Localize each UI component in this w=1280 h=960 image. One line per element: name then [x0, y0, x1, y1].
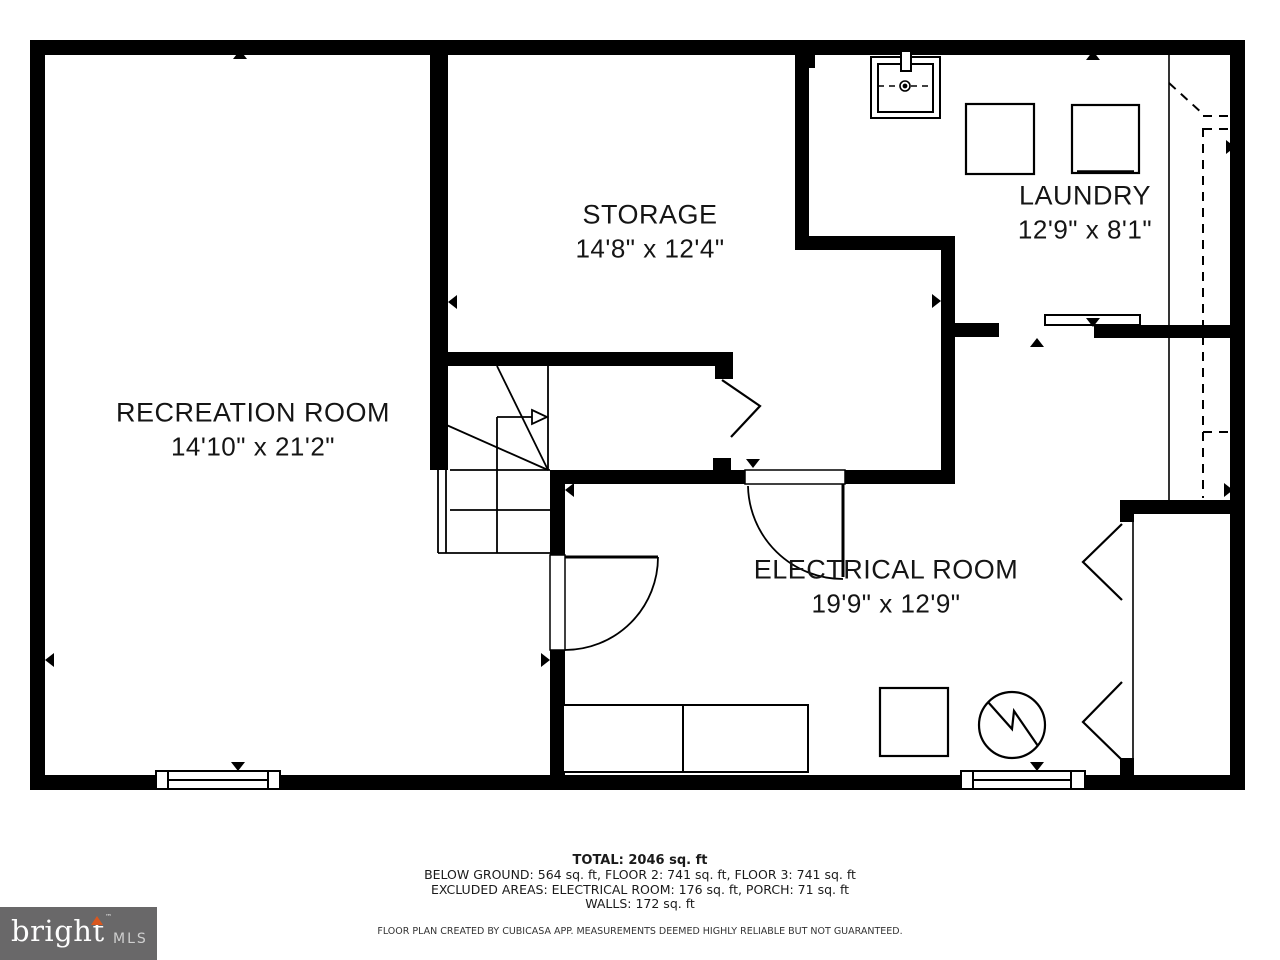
marker-right-icon	[541, 653, 550, 667]
closet-door	[1083, 682, 1122, 760]
room-label-electrical: ELECTRICAL ROOM 19'9" x 12'9"	[754, 553, 1019, 622]
room-dimensions: 12'9" x 8'1"	[1018, 214, 1152, 248]
window	[156, 771, 280, 789]
room-name: RECREATION ROOM	[116, 396, 390, 431]
marker-up-icon	[1030, 338, 1044, 347]
room-label-storage: STORAGE 14'8" x 12'4"	[575, 198, 724, 267]
water-heater-icon	[979, 692, 1045, 758]
floor-areas: BELOW GROUND: 564 sq. ft, FLOOR 2: 741 s…	[0, 868, 1280, 883]
disclaimer-text: FLOOR PLAN CREATED BY CUBICASA APP. MEAS…	[0, 926, 1280, 937]
marker-left-icon	[448, 295, 457, 309]
marker-down-icon	[746, 459, 760, 468]
room-name: ELECTRICAL ROOM	[754, 553, 1019, 588]
counter	[563, 705, 808, 772]
bright-mls-logo: bright ™ MLS	[0, 907, 157, 960]
stair-direction-arrow	[497, 410, 547, 424]
walls-area: WALLS: 172 sq. ft	[0, 897, 1280, 912]
sink-icon	[871, 51, 940, 118]
window	[961, 771, 1085, 789]
dryer-icon	[1072, 105, 1139, 173]
washer-icon	[966, 104, 1034, 174]
marker-down-icon	[1030, 762, 1044, 771]
stairs-above-dashed	[1169, 83, 1231, 498]
electrical-panel-icon	[880, 688, 948, 756]
room-dimensions: 14'8" x 12'4"	[575, 233, 724, 267]
room-dimensions: 14'10" x 21'2"	[116, 431, 390, 465]
logo-trademark: ™	[105, 913, 112, 921]
area-summary: TOTAL: 2046 sq. ft BELOW GROUND: 564 sq.…	[0, 853, 1280, 912]
stairs	[433, 366, 550, 553]
floor-plan-page: RECREATION ROOM 14'10" x 21'2" STORAGE 1…	[0, 0, 1280, 960]
excluded-areas: EXCLUDED AREAS: ELECTRICAL ROOM: 176 sq.…	[0, 883, 1280, 898]
marker-right-icon	[932, 294, 941, 308]
closet-door	[1083, 524, 1122, 600]
marker-left-icon	[565, 483, 574, 497]
floor-plan-drawing	[0, 0, 1280, 960]
storage-door	[722, 380, 760, 437]
marker-down-icon	[231, 762, 245, 771]
room-name: STORAGE	[575, 198, 724, 233]
stair-hall-door	[550, 555, 658, 650]
logo-flame-icon	[91, 916, 103, 925]
total-area: TOTAL: 2046 sq. ft	[0, 853, 1280, 868]
room-label-recreation: RECREATION ROOM 14'10" x 21'2"	[116, 396, 390, 465]
room-dimensions: 19'9" x 12'9"	[754, 588, 1019, 622]
marker-left-icon	[45, 653, 54, 667]
room-label-laundry: LAUNDRY 12'9" x 8'1"	[1018, 179, 1152, 248]
logo-suffix-text: MLS	[113, 931, 148, 947]
room-name: LAUNDRY	[1018, 179, 1152, 214]
